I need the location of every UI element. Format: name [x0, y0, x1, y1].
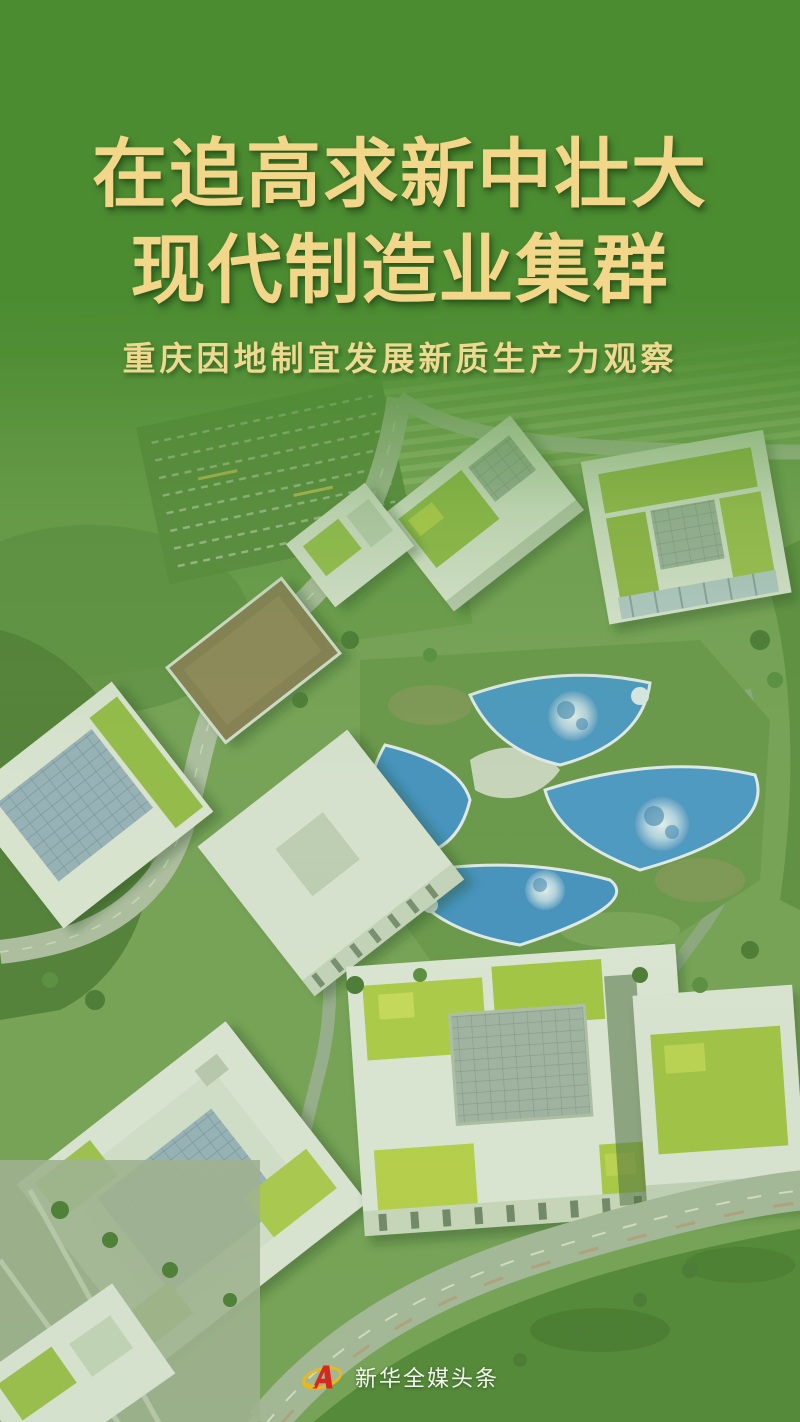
- subtitle: 重庆因地制宜发展新质生产力观察: [0, 332, 800, 380]
- xinhua-emblem-icon: [301, 1360, 345, 1394]
- brand-name: 新华全媒头条: [355, 1361, 499, 1393]
- news-poster: 在追高求新中壮大 现代制造业集群 重庆因地制宜发展新质生产力观察 新华全媒头条: [0, 0, 800, 1422]
- title-line-2: 现代制造业集群: [0, 222, 800, 318]
- brand-footer: 新华全媒头条: [0, 1360, 800, 1394]
- headline-block: 在追高求新中壮大 现代制造业集群 重庆因地制宜发展新质生产力观察: [0, 126, 800, 380]
- title-line-1: 在追高求新中壮大: [0, 126, 800, 222]
